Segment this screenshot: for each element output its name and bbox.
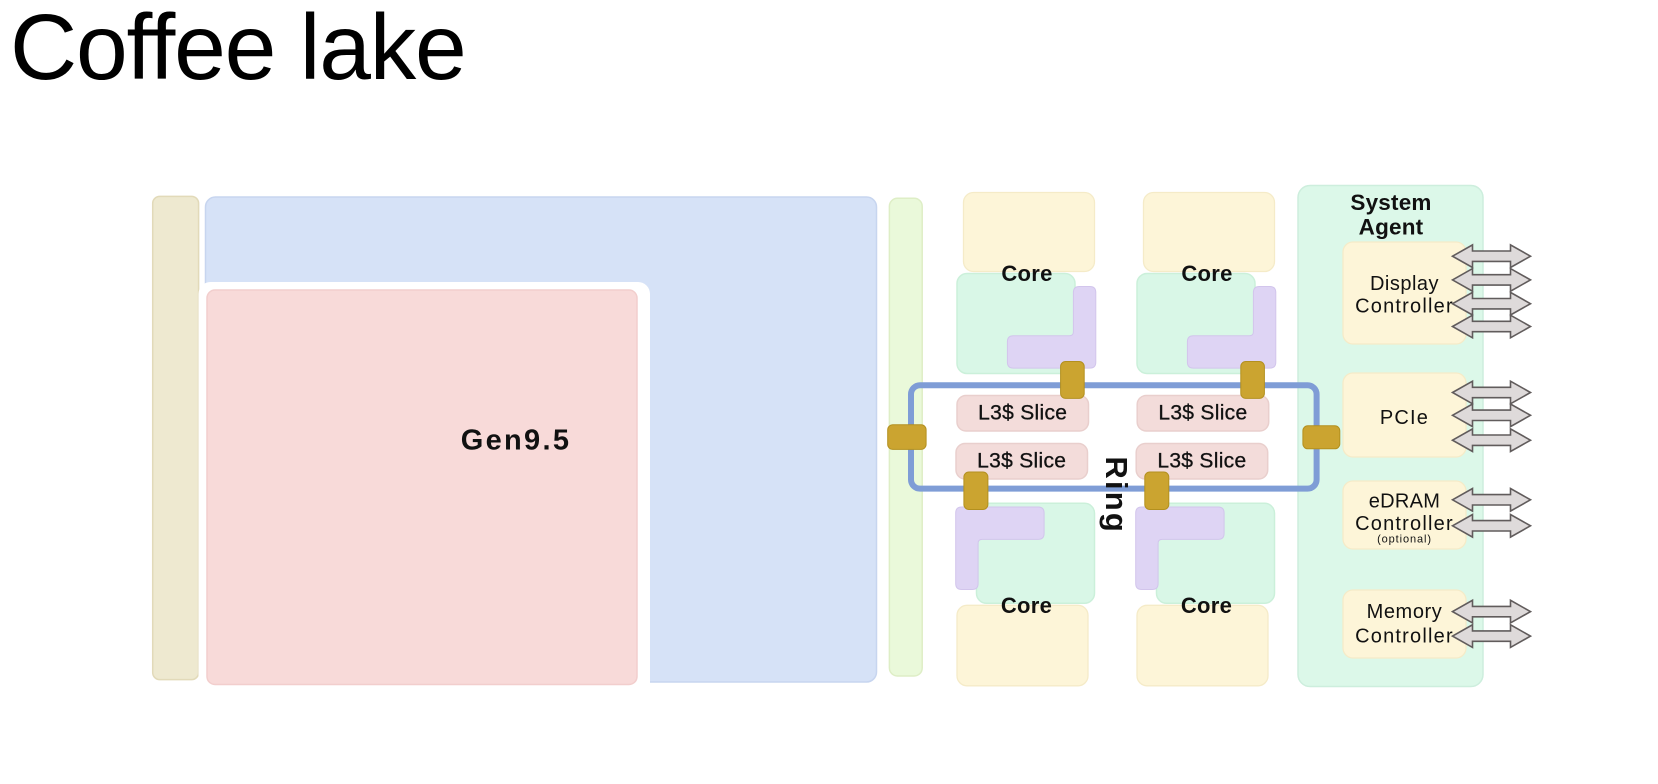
svg-text:L3$ Slice: L3$ Slice <box>977 449 1066 472</box>
svg-text:Core: Core <box>1181 261 1232 286</box>
svg-text:L3$ Slice: L3$ Slice <box>1158 401 1247 424</box>
svg-text:(optional): (optional) <box>1377 534 1432 546</box>
svg-text:L3$ Slice: L3$ Slice <box>978 401 1067 424</box>
svg-text:Controller: Controller <box>1355 513 1454 535</box>
svg-text:System: System <box>1350 190 1431 215</box>
svg-text:eDRAM: eDRAM <box>1369 491 1441 513</box>
svg-text:Display: Display <box>1370 273 1439 295</box>
svg-text:PCIe: PCIe <box>1380 407 1429 429</box>
svg-text:Ring: Ring <box>1099 456 1134 534</box>
svg-text:Core: Core <box>1001 261 1052 286</box>
svg-text:L3$ Slice: L3$ Slice <box>1157 449 1246 472</box>
svg-text:Controller: Controller <box>1355 625 1454 647</box>
svg-text:Controller: Controller <box>1355 296 1454 318</box>
svg-text:Agent: Agent <box>1359 215 1424 240</box>
svg-text:Core: Core <box>1181 593 1232 618</box>
svg-text:Memory: Memory <box>1367 601 1443 623</box>
svg-text:Core: Core <box>1001 593 1052 618</box>
svg-text:Gen9.5: Gen9.5 <box>461 425 572 457</box>
